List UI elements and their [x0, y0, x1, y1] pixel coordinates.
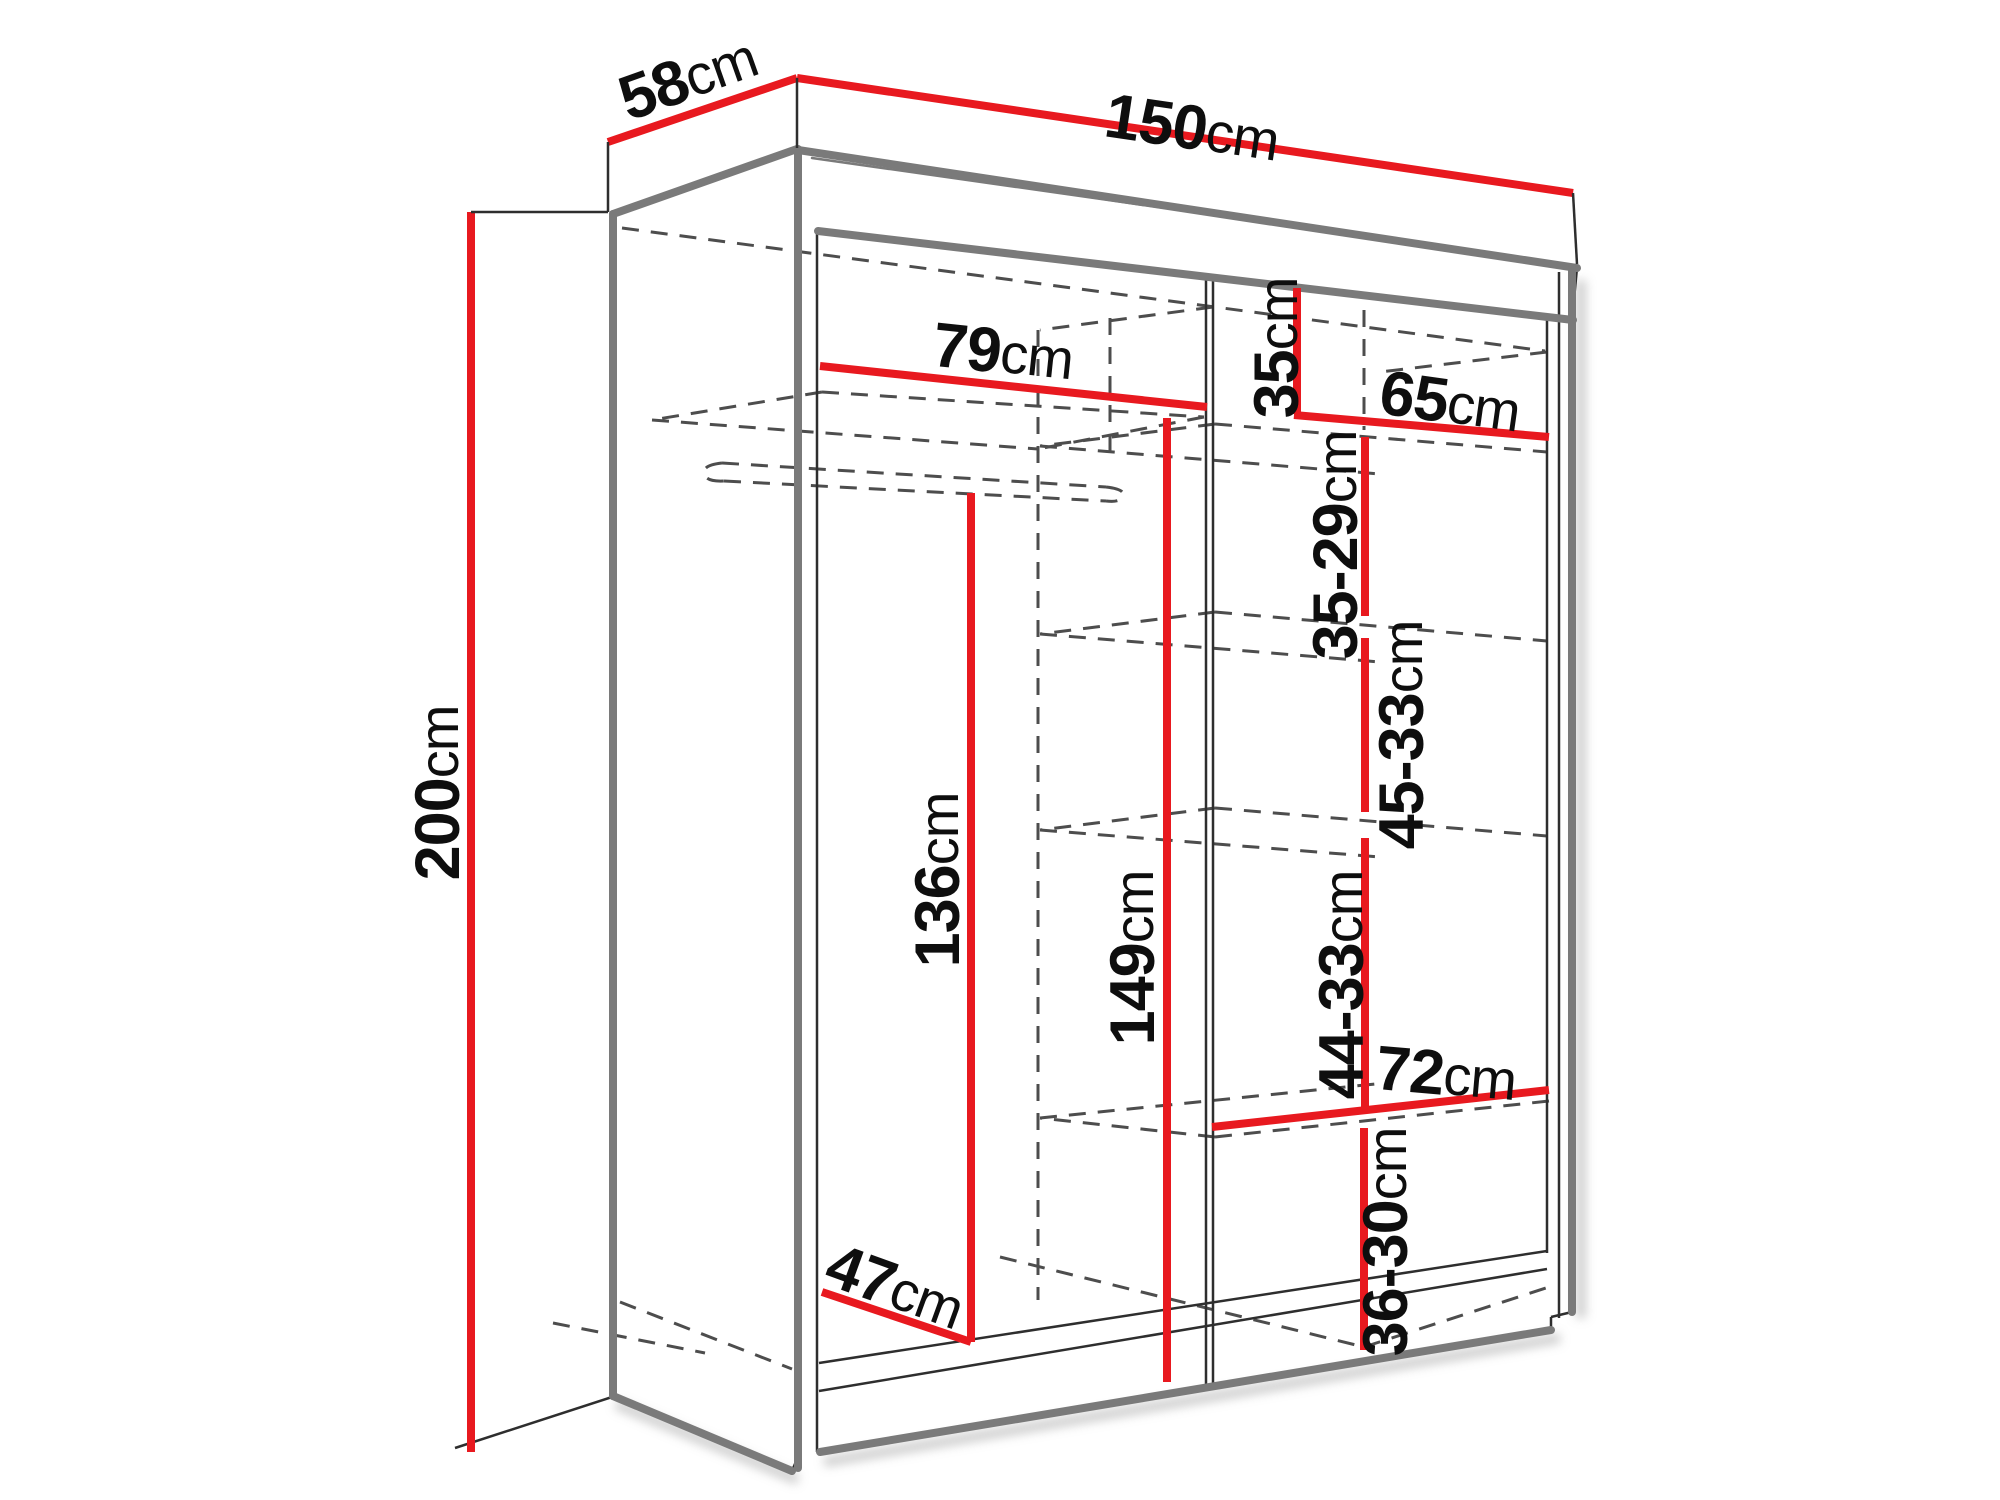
left-shelf-back-edge	[652, 420, 1038, 449]
label-35: 35cm	[1242, 278, 1312, 419]
label-136: 136cm	[903, 793, 973, 968]
hanging-rail-left-cap	[704, 463, 724, 481]
label-65: 65cm	[1375, 358, 1524, 447]
side-panel-top-edge	[613, 149, 797, 214]
shelf-b-side-edge	[1040, 612, 1215, 634]
label-45-33: 45-33cm	[1367, 621, 1437, 850]
drop-shadows	[616, 280, 1581, 1480]
hanging-rail-top	[722, 463, 1106, 487]
label-79: 79cm	[929, 310, 1076, 394]
diagram-canvas: 58cm 150cm 200cm 79cm 35cm 65cm 35-29cm …	[0, 0, 2000, 1500]
side-panel-bottom-edge	[613, 1396, 792, 1471]
shelf-c-back-edge	[1040, 830, 1380, 857]
tick-150-right	[1573, 193, 1577, 264]
bottom-front-edge	[820, 1330, 1551, 1452]
hanging-rail-right-cap	[1106, 487, 1123, 501]
shadow-panel-bottom	[616, 1404, 798, 1480]
label-47: 47cm	[817, 1230, 973, 1344]
label-height-200: 200cm	[403, 706, 473, 881]
wardrobe-dimension-diagram: 58cm 150cm 200cm 79cm 35cm 65cm 35-29cm …	[0, 0, 2000, 1500]
shelf-a-side-edge	[1040, 424, 1215, 446]
floor-depth-line-right	[1000, 1257, 1364, 1347]
label-44-33: 44-33cm	[1307, 871, 1377, 1100]
label-width-150: 150cm	[1100, 80, 1283, 175]
floor-depth-line-a	[620, 1302, 792, 1369]
floor-line-left	[455, 1397, 612, 1448]
label-36-30: 36-30cm	[1351, 1128, 1421, 1357]
shadow-bottom-edge	[824, 1338, 1560, 1462]
shelf-c-side-edge	[1040, 808, 1215, 830]
crown-bottom-edge	[818, 231, 1573, 320]
label-149: 149cm	[1098, 871, 1168, 1046]
label-72: 72cm	[1373, 1033, 1519, 1115]
ceiling-back-edge	[622, 228, 1545, 351]
shelf-d-side-edge	[1040, 1118, 1215, 1137]
label-35-29: 35-29cm	[1301, 431, 1371, 660]
dimension-labels: 58cm 150cm 200cm 79cm 35cm 65cm 35-29cm …	[403, 22, 1525, 1357]
